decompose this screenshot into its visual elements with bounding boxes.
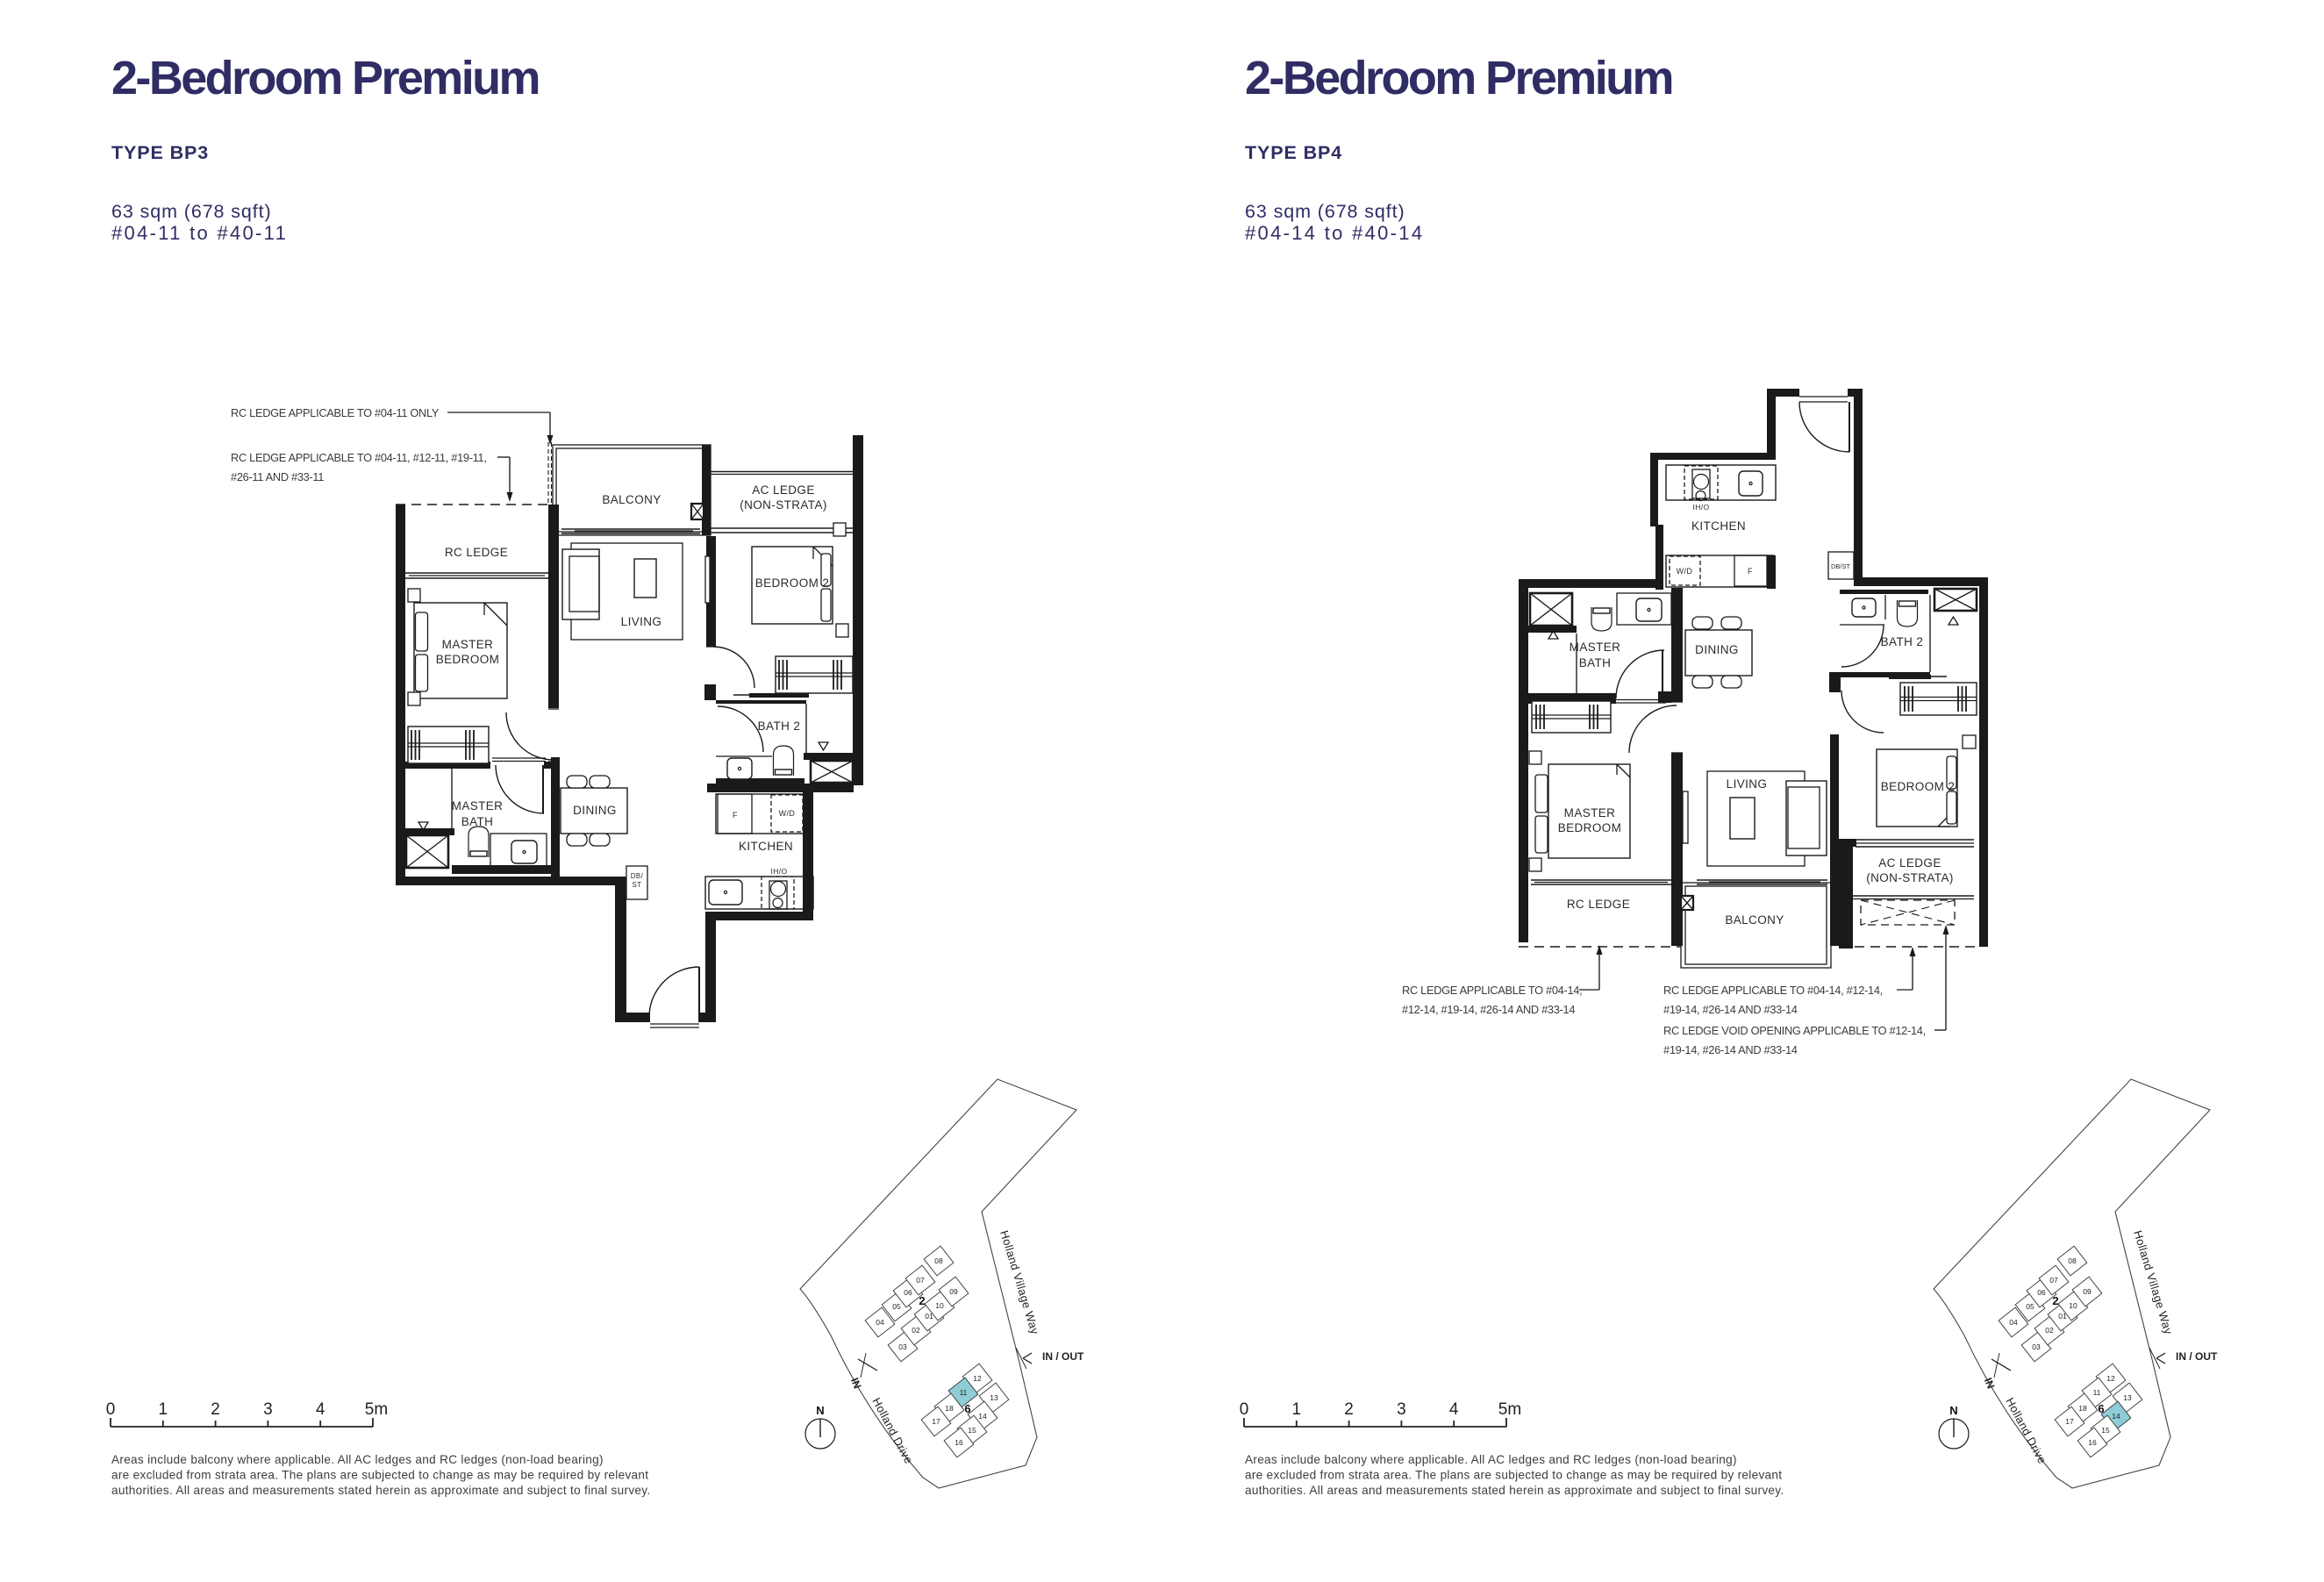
- svg-text:01: 01: [2058, 1312, 2067, 1321]
- svg-text:2: 2: [211, 1400, 220, 1419]
- svg-text:BATH 2: BATH 2: [1881, 635, 1924, 648]
- svg-text:Areas include balcony where ap: Areas include balcony where applicable. …: [1245, 1453, 1737, 1466]
- svg-text:07: 07: [916, 1276, 925, 1285]
- svg-text:63 sqm (678 sqft): 63 sqm (678 sqft): [111, 201, 272, 222]
- svg-text:08: 08: [2068, 1256, 2077, 1265]
- svg-text:RC LEDGE APPLICABLE TO #04-14,: RC LEDGE APPLICABLE TO #04-14, #12-14,: [1663, 984, 1883, 997]
- svg-text:3: 3: [263, 1400, 273, 1419]
- svg-text:02: 02: [2045, 1326, 2054, 1335]
- svg-text:10: 10: [2069, 1301, 2077, 1310]
- svg-text:IH/O: IH/O: [770, 867, 787, 876]
- svg-text:MASTER: MASTER: [442, 638, 494, 651]
- svg-text:02: 02: [912, 1326, 920, 1335]
- svg-text:KITCHEN: KITCHEN: [1691, 519, 1746, 533]
- svg-text:08: 08: [934, 1256, 943, 1265]
- svg-text:AC LEDGE: AC LEDGE: [752, 483, 814, 497]
- svg-text:MASTER: MASTER: [452, 799, 504, 812]
- svg-text:#19-14, #26-14 AND #33-14: #19-14, #26-14 AND #33-14: [1663, 1003, 1798, 1016]
- svg-text:13: 13: [990, 1393, 998, 1402]
- svg-text:(NON-STRATA): (NON-STRATA): [1866, 871, 1954, 884]
- svg-text:MASTER: MASTER: [1570, 641, 1621, 654]
- svg-text:03: 03: [898, 1342, 907, 1351]
- svg-text:17: 17: [2065, 1417, 2074, 1426]
- svg-text:2: 2: [2052, 1294, 2058, 1307]
- svg-text:N: N: [1949, 1404, 1957, 1417]
- svg-text:LIVING: LIVING: [1727, 777, 1768, 791]
- svg-text:RC LEDGE: RC LEDGE: [1567, 898, 1630, 911]
- svg-text:0: 0: [106, 1400, 116, 1419]
- svg-text:BATH: BATH: [461, 815, 494, 828]
- svg-text:are excluded from strata area.: are excluded from strata area. The plans…: [111, 1469, 648, 1482]
- svg-text:3: 3: [1397, 1400, 1406, 1419]
- svg-text:2: 2: [919, 1294, 925, 1307]
- svg-text:DB/: DB/: [631, 872, 644, 880]
- svg-text:RC LEDGE VOID OPENING APPLICAB: RC LEDGE VOID OPENING APPLICABLE TO #12-…: [1663, 1024, 1926, 1037]
- svg-text:12: 12: [973, 1374, 982, 1383]
- svg-text:05: 05: [2026, 1302, 2034, 1311]
- svg-text:Areas include balcony where ap: Areas include balcony where applicable. …: [111, 1453, 604, 1466]
- svg-text:18: 18: [945, 1404, 954, 1413]
- svg-text:15: 15: [968, 1426, 976, 1435]
- svg-text:06: 06: [2037, 1288, 2046, 1297]
- svg-text:01: 01: [925, 1312, 933, 1321]
- svg-text:0: 0: [1240, 1400, 1249, 1419]
- svg-text:AC LEDGE: AC LEDGE: [1878, 856, 1941, 870]
- svg-text:14: 14: [978, 1412, 987, 1421]
- svg-text:IH/O: IH/O: [1692, 503, 1709, 512]
- svg-text:11: 11: [960, 1388, 968, 1397]
- svg-text:17: 17: [932, 1417, 940, 1426]
- svg-text:F: F: [733, 811, 738, 820]
- svg-text:W/D: W/D: [779, 809, 796, 818]
- svg-text:6: 6: [964, 1402, 970, 1415]
- svg-text:2: 2: [1344, 1400, 1354, 1419]
- svg-text:(NON-STRATA): (NON-STRATA): [740, 498, 827, 512]
- svg-text:1: 1: [159, 1400, 168, 1419]
- svg-text:09: 09: [949, 1287, 958, 1296]
- svg-text:18: 18: [2078, 1404, 2087, 1413]
- svg-text:BALCONY: BALCONY: [602, 493, 661, 506]
- svg-text:BEDROOM: BEDROOM: [1558, 821, 1622, 834]
- svg-text:TYPE BP3: TYPE BP3: [111, 142, 209, 163]
- svg-text:RC LEDGE APPLICABLE TO #04-14,: RC LEDGE APPLICABLE TO #04-14,: [1402, 984, 1582, 997]
- svg-text:BALCONY: BALCONY: [1725, 913, 1784, 927]
- svg-text:DB/ST: DB/ST: [1831, 562, 1851, 570]
- svg-text:15: 15: [2101, 1426, 2110, 1435]
- svg-text:05: 05: [892, 1302, 901, 1311]
- svg-text:5m: 5m: [1498, 1400, 1521, 1419]
- svg-text:authorities. All areas and mea: authorities. All areas and measurements …: [1245, 1484, 1784, 1497]
- svg-text:BEDROOM 2: BEDROOM 2: [755, 576, 830, 590]
- svg-text:10: 10: [935, 1301, 944, 1310]
- svg-text:RC LEDGE APPLICABLE TO #04-11,: RC LEDGE APPLICABLE TO #04-11, #12-11, #…: [231, 451, 487, 464]
- svg-text:ST: ST: [632, 881, 641, 889]
- svg-text:authorities. All areas and mea: authorities. All areas and measurements …: [111, 1484, 650, 1497]
- svg-text:#04-14 to #40-14: #04-14 to #40-14: [1245, 222, 1424, 244]
- svg-text:IN / OUT: IN / OUT: [1042, 1350, 1084, 1363]
- svg-text:63 sqm (678 sqft): 63 sqm (678 sqft): [1245, 201, 1405, 222]
- svg-text:4: 4: [316, 1400, 325, 1419]
- svg-text:W/D: W/D: [1677, 567, 1693, 576]
- svg-text:N: N: [816, 1404, 824, 1417]
- svg-text:#19-14, #26-14 AND #33-14: #19-14, #26-14 AND #33-14: [1663, 1043, 1798, 1056]
- svg-text:16: 16: [955, 1438, 963, 1447]
- svg-text:RC LEDGE APPLICABLE TO #04-11: RC LEDGE APPLICABLE TO #04-11 ONLY: [231, 406, 440, 419]
- svg-text:BATH 2: BATH 2: [758, 719, 801, 733]
- svg-text:BEDROOM 2: BEDROOM 2: [1881, 780, 1956, 793]
- svg-text:12: 12: [2106, 1374, 2115, 1383]
- svg-text:2-Bedroom Premium: 2-Bedroom Premium: [1245, 52, 1672, 104]
- svg-text:IN / OUT: IN / OUT: [2176, 1350, 2218, 1363]
- svg-text:07: 07: [2049, 1276, 2058, 1285]
- svg-text:1: 1: [1292, 1400, 1302, 1419]
- svg-text:14: 14: [2112, 1412, 2120, 1421]
- svg-text:#26-11 AND #33-11: #26-11 AND #33-11: [231, 470, 324, 483]
- svg-text:DINING: DINING: [573, 804, 617, 817]
- svg-text:#12-14, #19-14, #26-14 AND #33: #12-14, #19-14, #26-14 AND #33-14: [1402, 1003, 1575, 1016]
- svg-text:KITCHEN: KITCHEN: [739, 840, 793, 853]
- svg-text:DINING: DINING: [1695, 643, 1739, 656]
- svg-text:6: 6: [2098, 1402, 2104, 1415]
- svg-text:#04-11 to #40-11: #04-11 to #40-11: [111, 222, 288, 244]
- svg-text:09: 09: [2083, 1287, 2092, 1296]
- svg-text:2-Bedroom Premium: 2-Bedroom Premium: [111, 52, 539, 104]
- svg-text:11: 11: [2093, 1388, 2101, 1397]
- svg-text:LIVING: LIVING: [621, 615, 662, 628]
- svg-text:04: 04: [2009, 1318, 2018, 1327]
- svg-text:are excluded from strata area.: are excluded from strata area. The plans…: [1245, 1469, 1782, 1482]
- svg-text:RC LEDGE: RC LEDGE: [445, 546, 508, 559]
- svg-text:4: 4: [1449, 1400, 1459, 1419]
- svg-text:F: F: [1748, 567, 1753, 576]
- svg-text:04: 04: [876, 1318, 884, 1327]
- svg-text:TYPE BP4: TYPE BP4: [1245, 142, 1342, 163]
- svg-text:MASTER: MASTER: [1564, 806, 1616, 820]
- svg-text:06: 06: [904, 1288, 912, 1297]
- svg-text:BATH: BATH: [1579, 656, 1612, 669]
- svg-text:BEDROOM: BEDROOM: [436, 653, 500, 666]
- svg-text:13: 13: [2123, 1393, 2132, 1402]
- svg-text:5m: 5m: [365, 1400, 388, 1419]
- svg-text:03: 03: [2032, 1342, 2041, 1351]
- svg-text:16: 16: [2088, 1438, 2097, 1447]
